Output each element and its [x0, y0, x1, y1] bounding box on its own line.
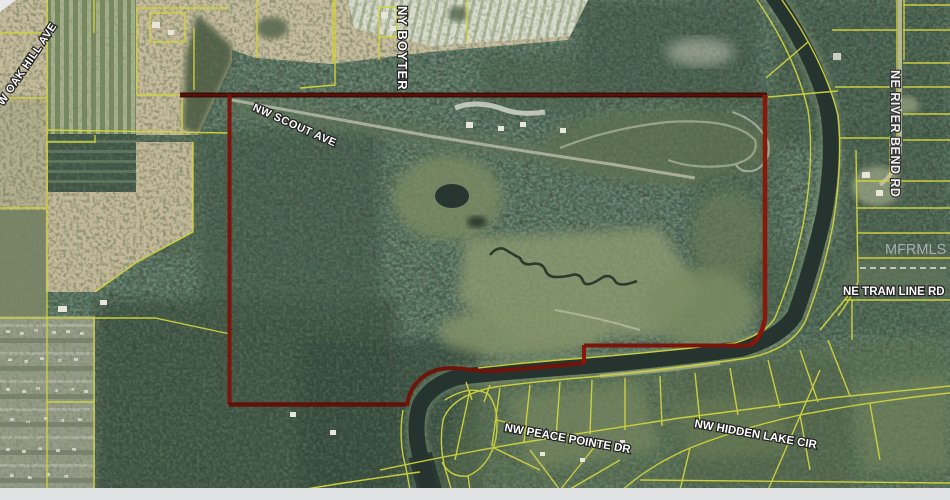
- svg-text:NE TRAM LINE RD: NE TRAM LINE RD: [843, 286, 945, 298]
- svg-text:NY BOYTER: NY BOYTER: [395, 6, 410, 91]
- svg-text:MFRMLS: MFRMLS: [885, 242, 946, 258]
- svg-text:NE RIVER BEND RD: NE RIVER BEND RD: [888, 70, 902, 197]
